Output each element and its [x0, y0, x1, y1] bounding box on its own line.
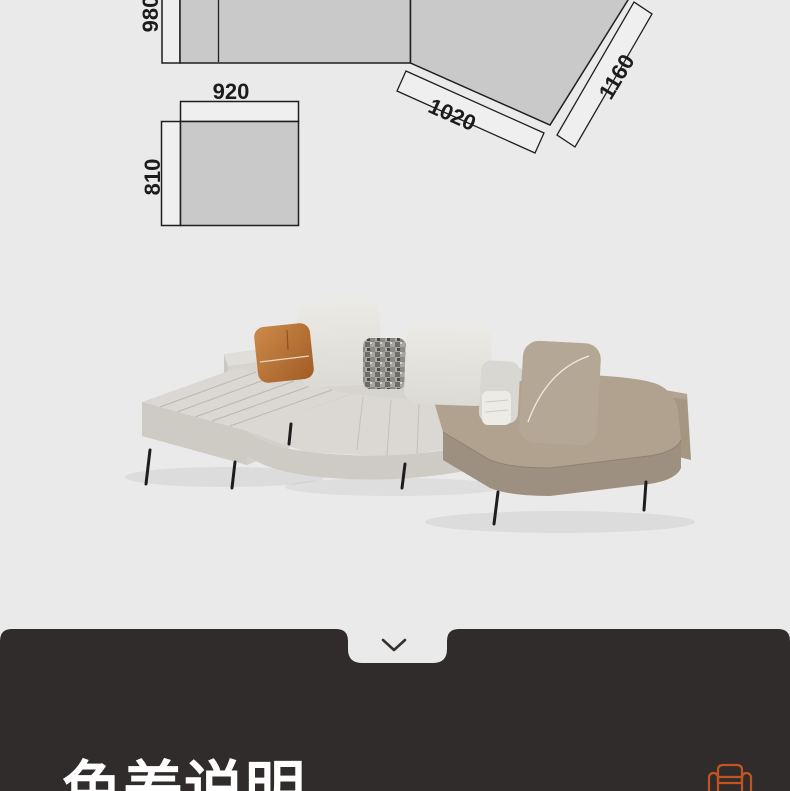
pillow-lumbar-white	[482, 391, 511, 425]
sofa-icon-right-arm	[742, 773, 751, 791]
plan-main-body	[180, 0, 411, 63]
dim-label-920: 920	[213, 79, 250, 104]
dim-label-980: 980	[138, 0, 163, 32]
pillow-taupe	[518, 340, 601, 446]
sofa-icon-back	[718, 765, 742, 777]
ottoman-top-band	[181, 102, 299, 122]
sofa-icon	[707, 762, 753, 791]
pillow-patterned	[363, 338, 406, 389]
plan-left-band	[162, 0, 180, 63]
chevron-down-icon[interactable]	[383, 640, 405, 650]
section-heading-color-note: 色差说明	[62, 757, 306, 791]
collapse-notch[interactable]	[383, 640, 405, 650]
spec-diagram: 980 1020 1160 920 810	[0, 0, 790, 250]
dim-label-810: 810	[140, 159, 165, 196]
ottoman-plan-view: 920 810	[140, 79, 299, 226]
pillow-orange	[253, 322, 315, 384]
pillow-offwhite-right	[404, 324, 493, 407]
sofa-product-photo	[95, 272, 695, 552]
sofa-icon-seat	[718, 777, 742, 783]
sofa-icon-left-arm	[709, 773, 718, 791]
product-detail-page: 980 1020 1160 920 810	[0, 0, 790, 791]
ottoman-body	[181, 122, 299, 226]
